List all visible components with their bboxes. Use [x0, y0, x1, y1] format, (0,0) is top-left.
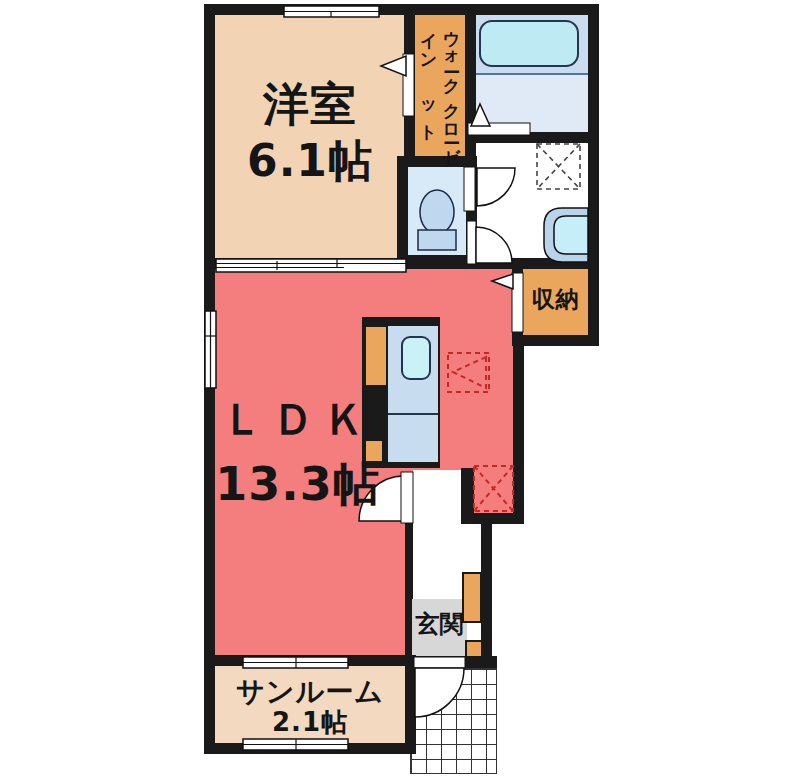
wic-line-1: ウォークイン — [416, 20, 464, 88]
bathroom — [465, 4, 599, 144]
bathtub — [479, 20, 579, 67]
toilet-room — [397, 156, 477, 266]
corridor-right-wall — [461, 468, 474, 524]
western-room-size: 6.1帖 — [215, 138, 405, 184]
western-room-name: 洋室 — [215, 80, 405, 128]
ldk-size: 13.3帖 — [205, 460, 390, 508]
ldk-name: ＬＤＫ — [215, 397, 380, 442]
floor-plan: 洋室 6.1帖 ウォークイン クローゼット ＬＤＫ 13.3帖 収納 玄関 サン… — [0, 0, 800, 784]
washroom — [465, 132, 599, 274]
entrance-tile-porch — [410, 668, 497, 774]
bathroom-divider-line — [476, 73, 588, 75]
entrance-name: 玄関 — [412, 612, 467, 637]
kitchen-sink — [401, 336, 431, 380]
entrance-bottom-wall — [402, 656, 497, 668]
sunroom-name: サンルーム — [225, 677, 395, 706]
kitchen-counter-divider — [388, 413, 438, 415]
storage-name: 収納 — [523, 287, 588, 311]
wic-line-2: クローゼット — [416, 91, 464, 158]
entrance-right-wall — [481, 514, 492, 660]
sunroom-size: 2.1帖 — [245, 709, 375, 736]
kitchen-cabinet-upper — [366, 327, 386, 385]
walk-in-closet-name: ウォークイン クローゼット — [416, 20, 464, 158]
